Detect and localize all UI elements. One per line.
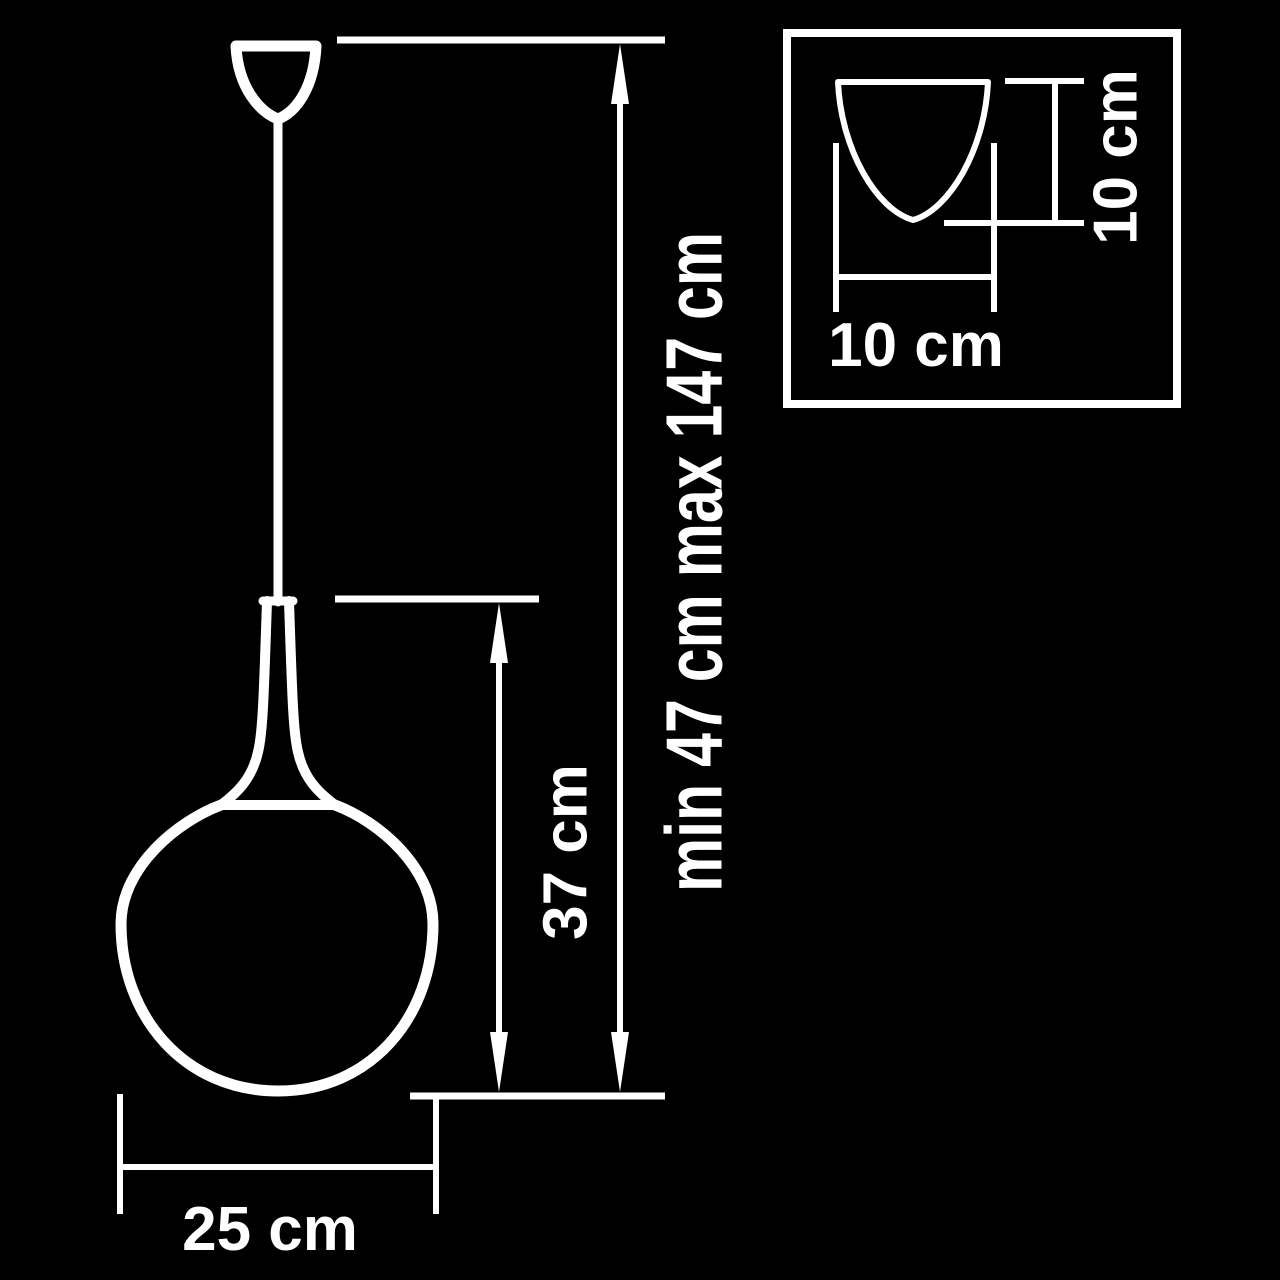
lamp-neck-left-outline: [221, 601, 267, 805]
lamp-neck-right-outline: [289, 601, 335, 805]
shade-height-arrow-down-icon: [490, 1032, 508, 1092]
pendant-lamp-diagram: min 47 cm max 147 cm 37 cm 25 cm: [0, 0, 1280, 1280]
shade-diameter-dimension: 25 cm: [120, 1094, 436, 1264]
shade-height-label: 37 cm: [532, 764, 601, 940]
canopy-width-dimension: 10 cm: [828, 143, 1004, 380]
canopy-height-label: 10 cm: [1082, 69, 1151, 245]
height-range-arrow-up-icon: [611, 44, 629, 104]
ceiling-canopy-outline: [236, 46, 316, 119]
height-range-arrow-down-icon: [611, 1032, 629, 1092]
shade-height-dimension: 37 cm: [335, 599, 601, 1092]
diagram-canvas: min 47 cm max 147 cm 37 cm 25 cm: [0, 0, 1280, 1280]
shade-diameter-label: 25 cm: [182, 1195, 358, 1264]
canopy-height-dimension: 10 cm: [944, 69, 1151, 245]
pendant-lamp-drawing: [121, 46, 433, 1091]
globe-shade-outline: [121, 805, 433, 1091]
canopy-detail-inset: 10 cm 10 cm: [787, 33, 1177, 404]
canopy-width-label: 10 cm: [828, 311, 1004, 380]
height-range-label: min 47 cm max 147 cm: [650, 232, 739, 892]
shade-height-arrow-up-icon: [490, 603, 508, 663]
inset-canopy-outline: [838, 82, 988, 220]
